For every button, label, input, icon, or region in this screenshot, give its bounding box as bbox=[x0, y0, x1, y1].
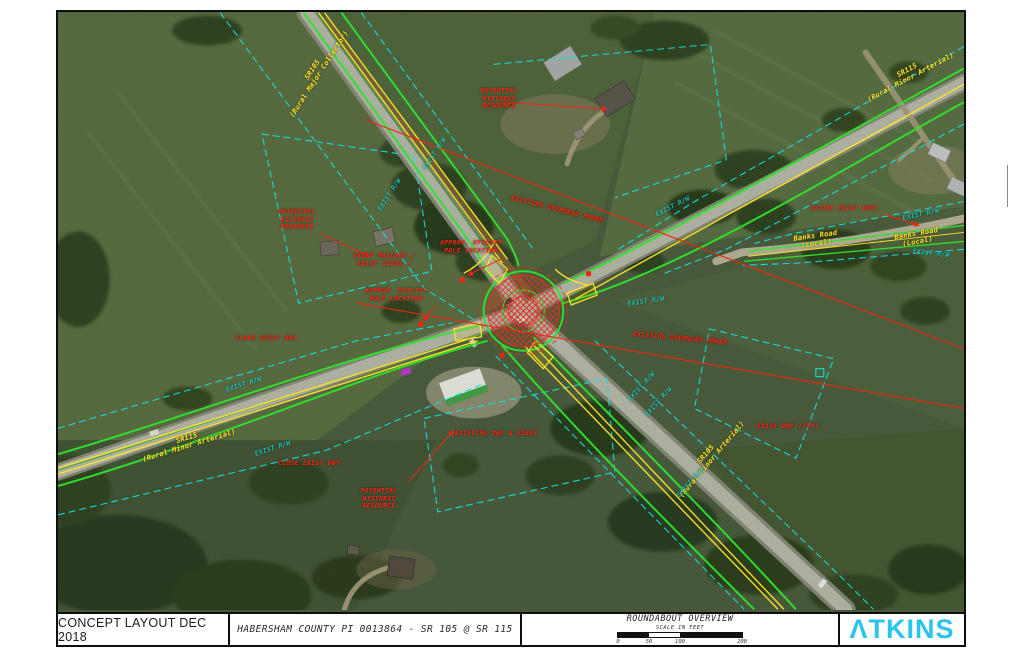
atkins-logo: ΛTKINS bbox=[849, 614, 954, 645]
road-label-sr105-se: SR105 (Rural Minor Arterial) bbox=[671, 414, 746, 499]
road-label-sr105-nw: SR105 (Rural Major Collector) bbox=[281, 25, 350, 119]
rw-label-6: EXIST R/W bbox=[627, 296, 665, 309]
callout-potential-historic-resource-north: POTENTIAL HISTORIC RESOURCE bbox=[480, 88, 517, 111]
road-label-sr115-ne: SR115 (Rural Minor Arterial) bbox=[862, 44, 956, 104]
rw-label-3: EXIST R/W bbox=[655, 195, 691, 219]
callout-close-exist-dwy-1: CLOSE EXIST DWY bbox=[235, 335, 297, 343]
plan-sheet: SR105 (Rural Major Collector)SR115 (Rura… bbox=[56, 10, 966, 647]
road-label-banks-road-2: Banks Road (Local) bbox=[894, 226, 940, 250]
rw-label-8: EXIST R/W bbox=[644, 386, 674, 419]
callout-close-exist-dwy-2: CLOSE EXIST DWY bbox=[278, 460, 340, 468]
title-block: CONCEPT LAYOUT DEC 2018 HABERSHAM COUNTY… bbox=[58, 612, 964, 645]
drawing-title: ROUNDABOUT OVERVIEW bbox=[627, 614, 734, 624]
rw-label-7: EXIST R/W bbox=[627, 371, 657, 404]
callout-existing-dwy-signs: EXISTING DWY & SIGNS bbox=[455, 430, 537, 438]
scale-tick-50: 50 bbox=[646, 639, 653, 645]
callout-close-exist-dwy-banks: (CLOSE EXIST DWY) bbox=[809, 205, 879, 213]
rw-label-1: EXIST R/W bbox=[422, 136, 449, 171]
rw-label-9: EXIST R/W bbox=[225, 376, 263, 395]
logo-cell: ΛTKINS bbox=[838, 614, 964, 645]
project-cell: HABERSHAM COUNTY PI 0013864 - SR 105 @ S… bbox=[228, 614, 520, 645]
callout-utility-pole-ne: APPROX. UTILITY POLE LOCATION bbox=[440, 239, 502, 254]
callout-potential-historic-resource-south: POTENTIAL HISTORIC RESOURCE bbox=[360, 488, 397, 511]
callout-utility-pole-sw: APPROX. UTILITY POLE LOCATION bbox=[365, 287, 427, 302]
revision-text: CONCEPT LAYOUT DEC 2018 bbox=[58, 616, 228, 644]
map-label-layer: SR105 (Rural Major Collector)SR115 (Rura… bbox=[58, 12, 964, 612]
scale-tick-0: 0 bbox=[616, 639, 619, 645]
callout-exist-dwy-typ: EXIST DWY (TYP) bbox=[757, 423, 819, 431]
rw-label-4: EXIST R/W bbox=[902, 207, 940, 222]
scale-ticks: 050100200 bbox=[618, 639, 742, 645]
rw-label-11: EXIST R/W bbox=[676, 467, 706, 500]
page-edge-mark bbox=[1007, 165, 1008, 207]
road-label-banks-road-1: Banks Road (Local) bbox=[793, 229, 839, 251]
scale-bar bbox=[617, 632, 743, 638]
rw-label-2: EXIST R/W bbox=[377, 177, 404, 212]
drawing-title-cell: ROUNDABOUT OVERVIEW SCALE IN FEET 050100… bbox=[520, 614, 838, 645]
callout-potential-historic-resource-west: POTENTIAL HISTORIC RESOURCE bbox=[278, 209, 315, 232]
scale-label: SCALE IN FEET bbox=[656, 625, 704, 631]
callout-exist-mailbox-signs: EXIST MAILBOX / EXIST SIGNS / bbox=[353, 252, 415, 267]
project-text: HABERSHAM COUNTY PI 0013864 - SR 105 @ S… bbox=[237, 624, 512, 635]
aerial-map: SR105 (Rural Major Collector)SR115 (Rura… bbox=[58, 12, 964, 612]
revision-cell: CONCEPT LAYOUT DEC 2018 bbox=[58, 614, 228, 645]
road-label-sr115-sw: SR115 (Rural Minor Arterial) bbox=[139, 420, 237, 464]
callout-overhead-power-1: EXISTING OVERHEAD POWER bbox=[510, 195, 604, 225]
rw-label-10: EXIST R/W bbox=[254, 440, 292, 459]
scale-tick-100: 100 bbox=[675, 639, 685, 645]
scale-tick-200: 200 bbox=[737, 639, 747, 645]
callout-overhead-power-2: EXISTING OVERHEAD POWER bbox=[633, 331, 728, 347]
rw-label-5: EXIST R/W bbox=[912, 248, 950, 259]
